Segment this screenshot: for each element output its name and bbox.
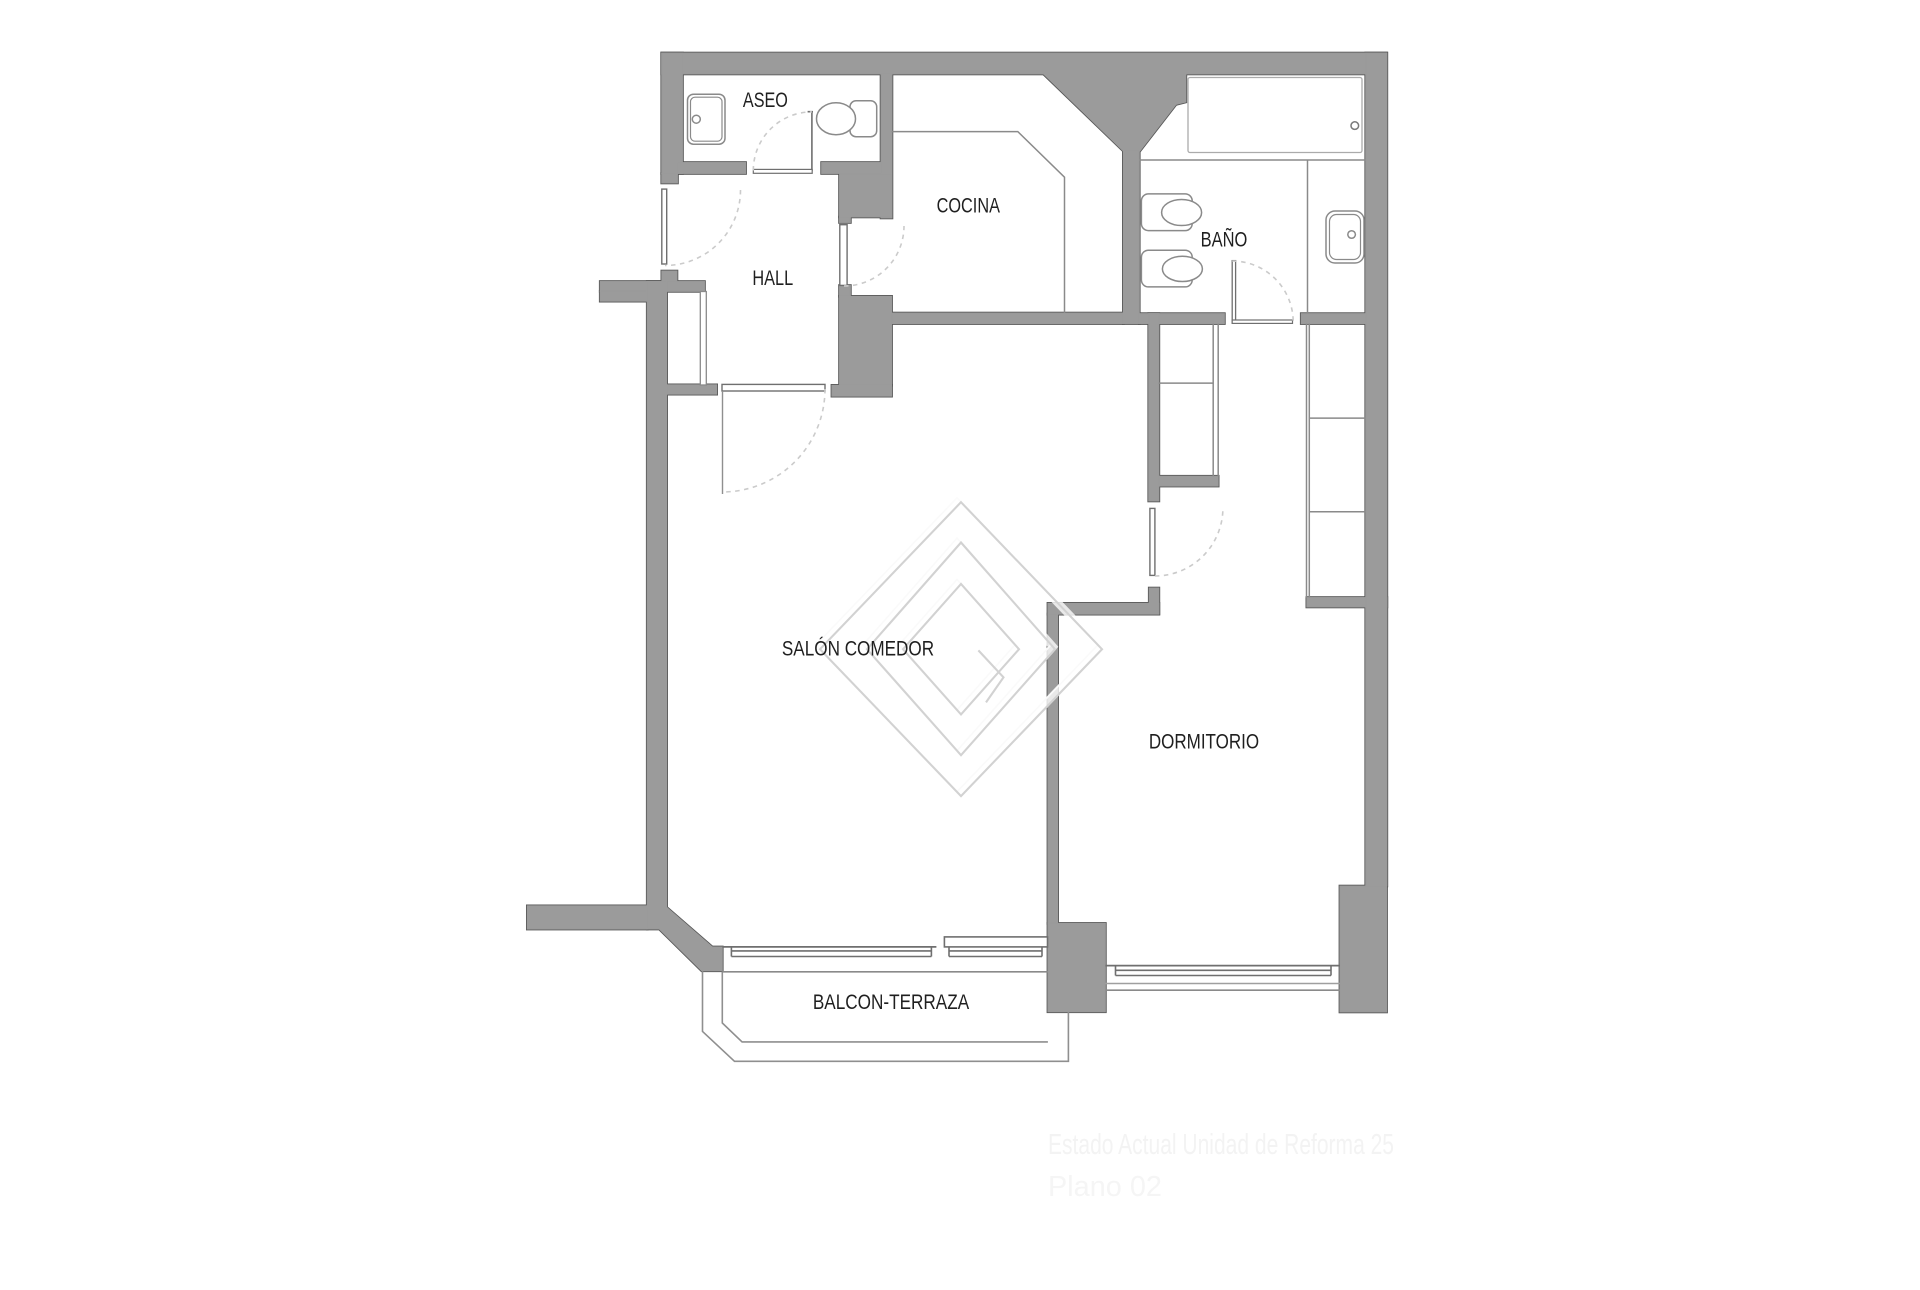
- svg-text:DORMITORIO: DORMITORIO: [1149, 729, 1259, 753]
- svg-text:COCINA: COCINA: [937, 194, 1001, 218]
- svg-text:ASEO: ASEO: [743, 88, 788, 112]
- svg-text:Estado Actual Unidad de Reform: Estado Actual Unidad de Reforma 25: [1048, 1129, 1394, 1161]
- svg-text:Plano 02: Plano 02: [1048, 1171, 1162, 1203]
- svg-text:BAÑO: BAÑO: [1201, 227, 1248, 252]
- svg-text:HALL: HALL: [752, 266, 793, 290]
- svg-text:BALCON-TERRAZA: BALCON-TERRAZA: [813, 990, 970, 1014]
- svg-text:SALÓN COMEDOR: SALÓN COMEDOR: [782, 636, 934, 661]
